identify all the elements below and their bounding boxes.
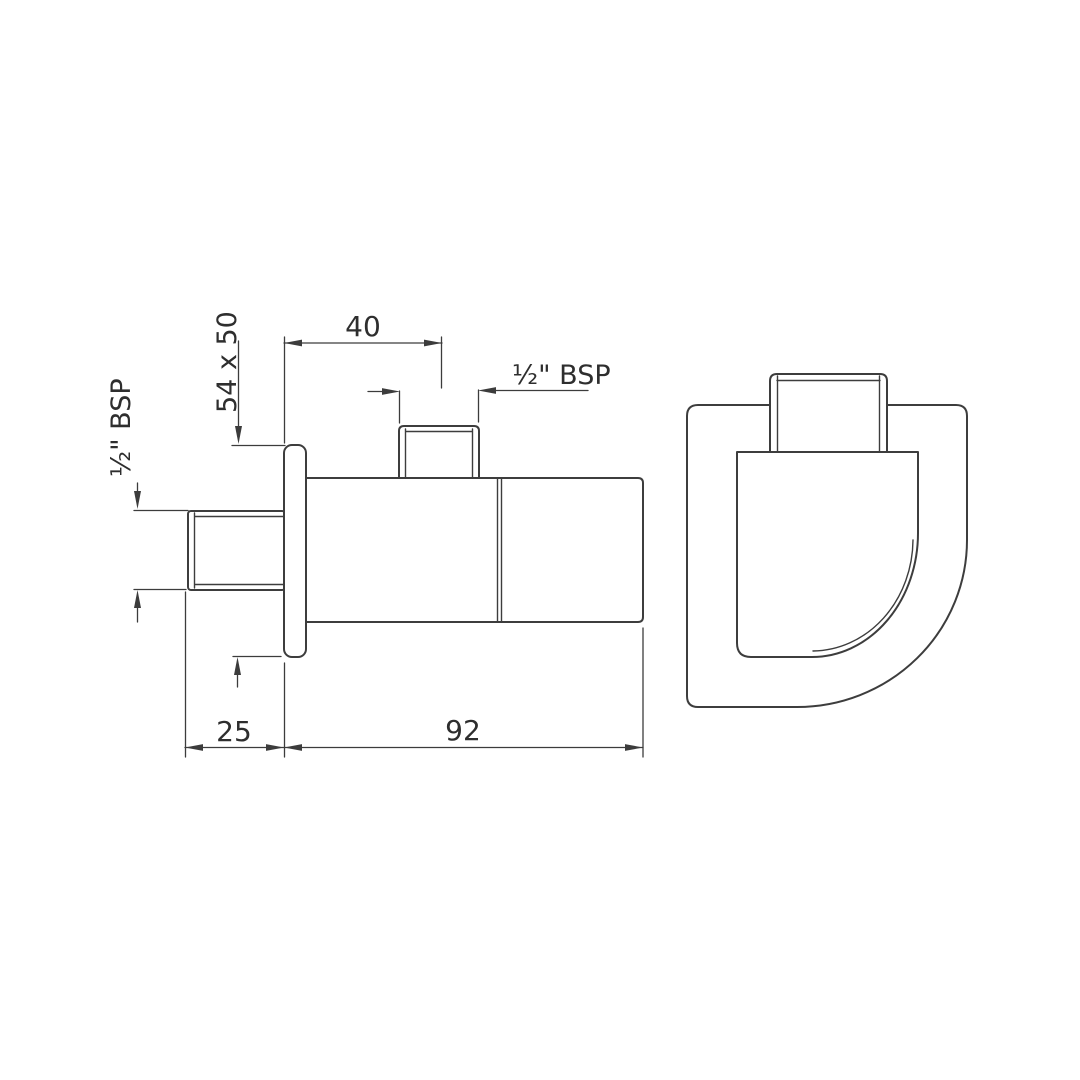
arrowhead-down [235, 426, 242, 444]
front-outlet-stub-outline [770, 374, 887, 452]
arrowhead-left [284, 744, 302, 751]
dimension-outlet-thread: ½" BSP [368, 360, 611, 423]
dimension-inlet-thread: ½" BSP [106, 378, 188, 622]
front-view [687, 374, 967, 707]
arrowhead-right [625, 744, 643, 751]
arrowhead-right [266, 744, 284, 751]
front-outlet-stub [770, 374, 887, 452]
dim-label-inlet-bsp: ½" BSP [106, 378, 137, 477]
arrowhead-up [134, 590, 141, 608]
arrowhead-up [234, 657, 241, 675]
inlet-pipe [188, 511, 285, 590]
wall-flange [284, 445, 306, 657]
dim-label-92: 92 [445, 714, 481, 747]
outlet-stub-outline [399, 426, 479, 478]
dim-label-25: 25 [216, 715, 252, 748]
side-view [188, 426, 643, 657]
dim-label-outlet-bsp: ½" BSP [512, 360, 611, 391]
arrowhead-left [478, 387, 496, 394]
dimension-flange-size: 54 x 50 [212, 311, 285, 687]
valve-dimension-drawing: 40 54 x 50 ½" BSP ½" BSP [0, 0, 1080, 1080]
arrowhead-left [185, 744, 203, 751]
arrowhead-left [284, 340, 302, 347]
technical-drawing-canvas: 40 54 x 50 ½" BSP ½" BSP [0, 0, 1080, 1080]
inlet-pipe-outline [188, 511, 285, 590]
valve-body [306, 478, 643, 622]
dim-label-40: 40 [345, 310, 381, 343]
arrowhead-down [134, 491, 141, 509]
arrowhead-right [382, 388, 400, 395]
dimension-outlet-offset: 40 [284, 310, 442, 443]
outlet-stub [399, 426, 479, 478]
arrowhead-right [424, 340, 442, 347]
